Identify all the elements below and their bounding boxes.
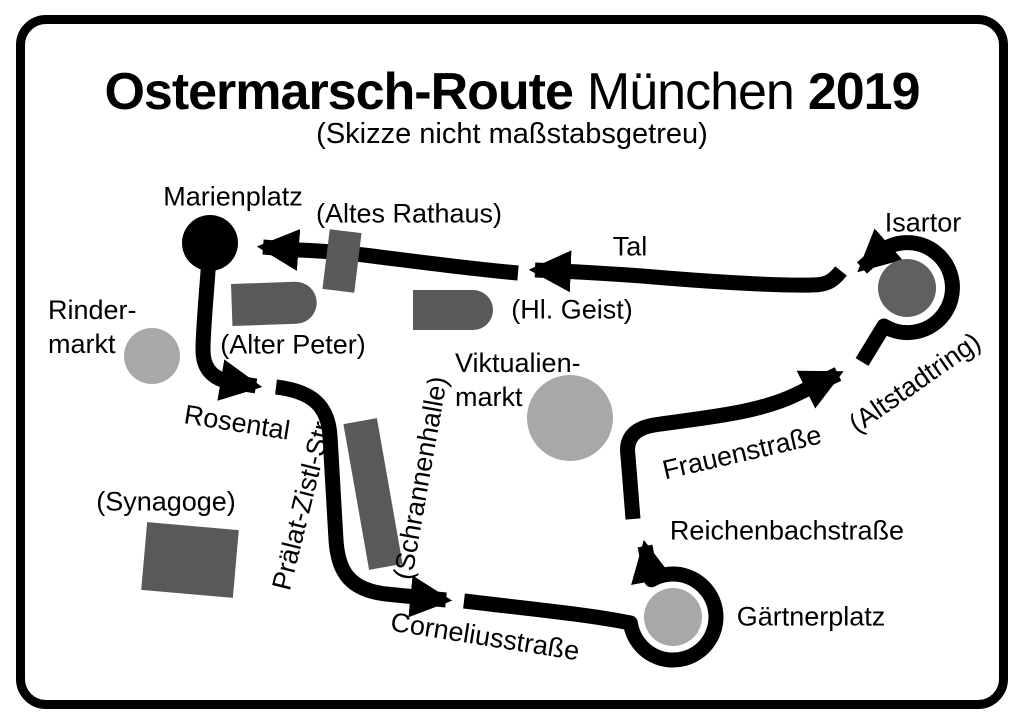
title-part-regular: München [587,62,794,122]
label-viktualienmarkt-line1: Viktualien- [455,346,581,380]
label-marienplatz: Marienplatz [163,182,303,213]
building-altes-rathaus [322,229,361,292]
building-hl-geist [413,290,493,330]
label-synagoge: (Synagoge) [96,487,236,518]
label-rindermarkt-line2: markt [48,327,137,361]
label-viktualienmarkt-line2: markt [455,380,581,414]
isartor-circle [878,259,936,317]
map-sketch: Ostermarsch-Route München 2019 (Skizze n… [0,0,1024,724]
page-subtitle: (Skizze nicht maßstabsgetreu) [0,118,1024,151]
label-gaertnerplatz: Gärtnerplatz [737,602,886,633]
route-segment-tal [535,270,841,285]
label-hl-geist: (Hl. Geist) [511,295,633,326]
building-alter-peter [231,281,317,326]
label-alter-peter: (Alter Peter) [220,330,366,361]
route-segment-tal-to-marienplatz [263,247,518,273]
gaertnerplatz-circle [644,588,702,646]
title-part-bold-2: 2019 [808,62,920,122]
label-rindermarkt: Rinder- markt [48,293,137,361]
label-isartor: Isartor [885,208,962,239]
building-synagoge [141,522,239,598]
label-rindermarkt-line1: Rinder- [48,293,137,327]
label-altes-rathaus: (Altes Rathaus) [316,199,502,230]
label-tal: Tal [613,232,648,263]
label-reichenbachstrasse: Reichenbachstraße [670,516,904,547]
marienplatz-circle [182,215,238,271]
label-viktualienmarkt: Viktualien- markt [455,346,581,414]
page-title: Ostermarsch-Route München 2019 [0,62,1024,122]
title-part-bold-1: Ostermarsch-Route [104,62,572,122]
